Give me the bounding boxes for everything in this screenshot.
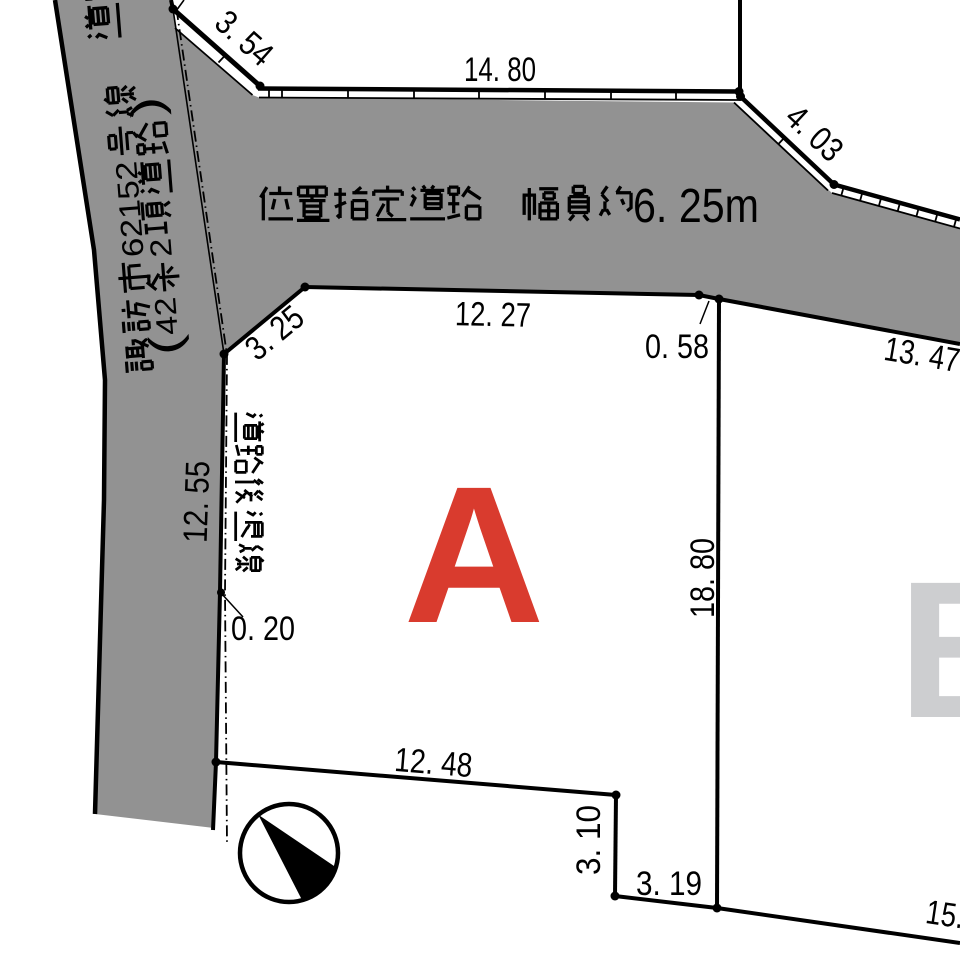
svg-text:0. 58: 0. 58	[645, 328, 709, 366]
svg-text:12. 48: 12. 48	[393, 741, 474, 785]
svg-text:3. 19: 3. 19	[636, 865, 702, 903]
svg-text:): )	[122, 95, 172, 119]
svg-text:A: A	[404, 446, 545, 664]
svg-text:2: 2	[144, 237, 178, 259]
svg-text:B: B	[898, 541, 960, 759]
svg-text:15. 16: 15. 16	[923, 893, 960, 942]
svg-text:18. 80: 18. 80	[684, 538, 722, 618]
svg-text:12. 27: 12. 27	[455, 295, 532, 335]
svg-text:3. 10: 3. 10	[570, 805, 608, 875]
svg-text:14. 80: 14. 80	[464, 51, 536, 89]
svg-text:3. 54: 3. 54	[207, 3, 280, 74]
svg-text:6. 25m: 6. 25m	[633, 180, 759, 233]
svg-text:12. 55: 12. 55	[177, 460, 218, 543]
svg-text:42: 42	[149, 296, 185, 336]
svg-text:0. 20: 0. 20	[231, 610, 295, 648]
